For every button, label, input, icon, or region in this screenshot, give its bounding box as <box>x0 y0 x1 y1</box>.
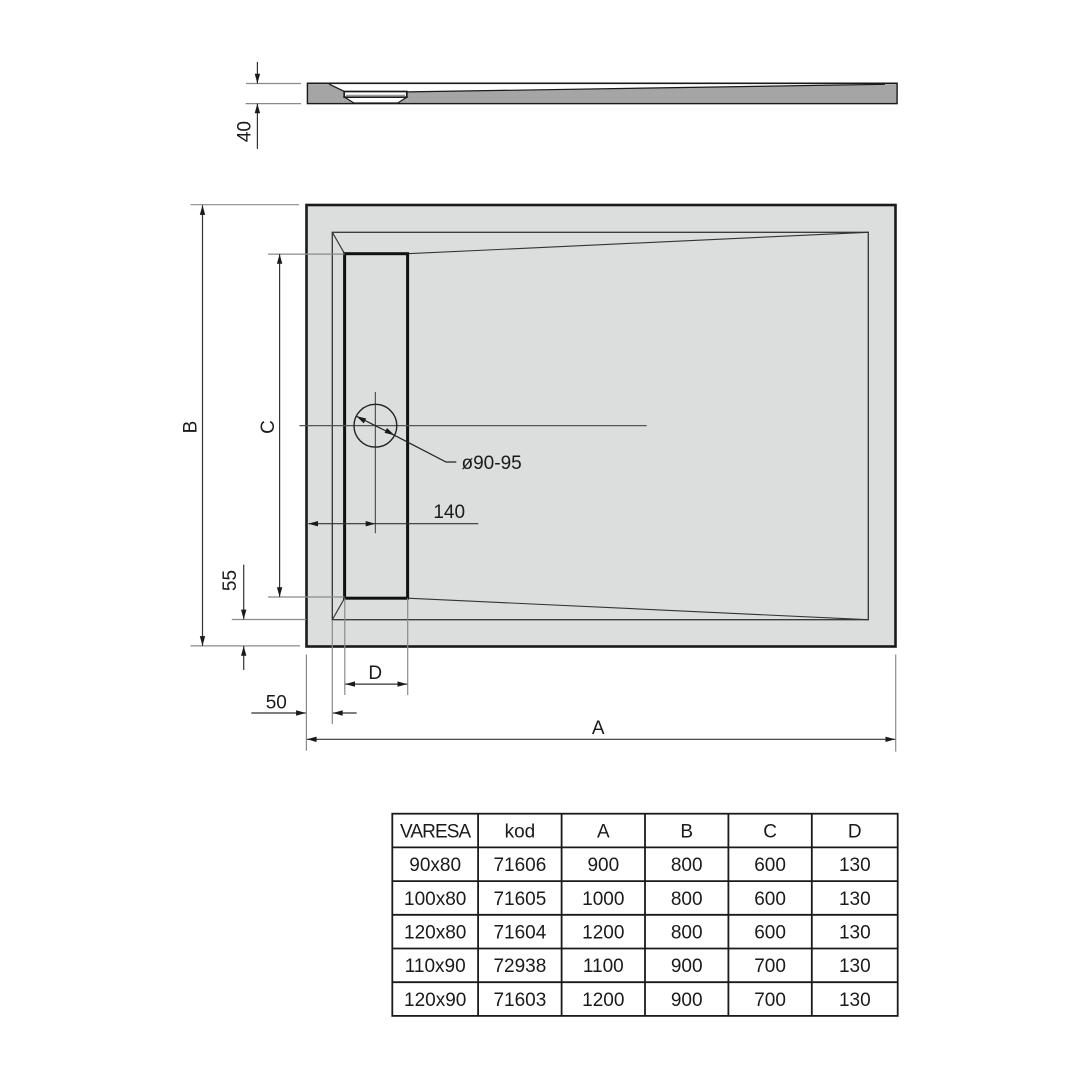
svg-text:800: 800 <box>671 855 703 876</box>
svg-text:900: 900 <box>587 855 619 876</box>
svg-text:C: C <box>258 420 279 434</box>
svg-text:800: 800 <box>671 889 703 910</box>
svg-text:800: 800 <box>671 923 703 944</box>
svg-text:B: B <box>180 421 201 434</box>
svg-text:600: 600 <box>754 889 786 910</box>
svg-text:900: 900 <box>671 956 703 977</box>
svg-text:VARESA: VARESA <box>400 821 472 842</box>
svg-text:130: 130 <box>839 923 871 944</box>
svg-text:71604: 71604 <box>493 923 546 944</box>
svg-text:C: C <box>763 821 777 842</box>
svg-text:90x80: 90x80 <box>409 855 461 876</box>
svg-text:100x80: 100x80 <box>404 889 466 910</box>
svg-text:1100: 1100 <box>583 956 624 977</box>
svg-text:71603: 71603 <box>493 990 546 1011</box>
svg-text:71606: 71606 <box>493 855 546 876</box>
svg-text:130: 130 <box>839 990 871 1011</box>
svg-text:72938: 72938 <box>493 956 546 977</box>
svg-text:130: 130 <box>839 855 871 876</box>
svg-text:71605: 71605 <box>493 889 546 910</box>
svg-text:700: 700 <box>754 990 786 1011</box>
svg-text:D: D <box>368 663 382 684</box>
svg-text:120x90: 120x90 <box>404 990 466 1011</box>
svg-text:140: 140 <box>433 502 465 523</box>
svg-text:1200: 1200 <box>582 990 624 1011</box>
svg-text:D: D <box>848 821 862 842</box>
svg-text:A: A <box>592 718 605 739</box>
svg-text:55: 55 <box>220 570 241 591</box>
svg-text:600: 600 <box>754 855 786 876</box>
svg-text:130: 130 <box>839 956 871 977</box>
svg-text:110x90: 110x90 <box>405 956 466 977</box>
svg-text:600: 600 <box>754 923 786 944</box>
svg-text:130: 130 <box>839 889 871 910</box>
svg-text:kod: kod <box>505 821 536 842</box>
svg-text:120x80: 120x80 <box>404 923 466 944</box>
svg-text:700: 700 <box>754 956 786 977</box>
svg-text:A: A <box>597 821 610 842</box>
svg-text:50: 50 <box>266 693 287 714</box>
svg-text:40: 40 <box>235 121 256 142</box>
svg-text:ø90-95: ø90-95 <box>462 453 522 474</box>
svg-text:B: B <box>680 821 693 842</box>
svg-text:1000: 1000 <box>582 889 624 910</box>
svg-text:1200: 1200 <box>582 923 624 944</box>
svg-text:900: 900 <box>671 990 703 1011</box>
